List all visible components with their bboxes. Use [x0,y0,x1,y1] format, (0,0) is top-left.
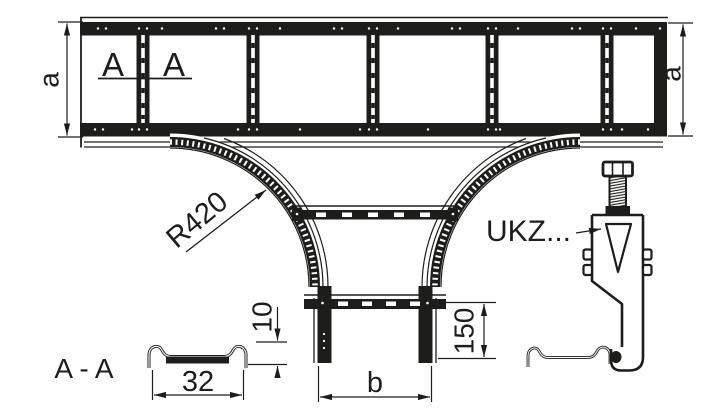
section-title: A - A [54,353,113,384]
clamp-lug [584,265,593,275]
ladder-rung [601,35,614,123]
dim-150: 150 [438,303,496,359]
clamp-lug [643,265,652,275]
dim-b-label: b [367,367,383,399]
dim-10-label: 10 [247,301,278,332]
clamp-grip-point [611,351,622,363]
section-mark-a-left: A [102,46,124,83]
ladder-rung [247,35,260,123]
section-mark-a-right: A [163,46,185,83]
dim-32: 32 [153,366,244,400]
ladder-rung [367,35,380,123]
section-aa-detail: A - A 32 10 [54,301,287,400]
branch-rung-lower [304,295,446,310]
clamp-v-notch [606,224,631,272]
ukz-clamp-detail: UKZ... [486,162,652,371]
dim-a-left-label: a [34,72,65,88]
clamp-bolt [603,162,633,215]
clamp-label: UKZ... [486,215,571,248]
bolt-collar [606,206,631,215]
dim-150-label: 150 [449,308,480,355]
clamp-rung-profile [528,347,610,367]
clamp-lug [643,250,652,260]
dim-10: 10 [247,301,288,377]
branch-rails [314,286,436,363]
clamp-lug [584,250,593,260]
drawing-canvas: a a A A R420 150 b A - A [0,0,709,417]
dim-a-right-label: a [656,66,687,82]
dim-b: b [319,366,432,402]
ladder-rung [486,35,499,123]
branch-rung-upper [292,206,458,221]
clamp-body [584,215,652,371]
radius-leader: R420 [160,186,266,255]
bolt-shaft [610,175,627,208]
dim-32-label: 32 [182,366,214,398]
rung-profile-section [149,346,246,368]
bolt-head [603,162,633,176]
radius-label: R420 [160,186,234,255]
tee-branch [170,138,580,363]
